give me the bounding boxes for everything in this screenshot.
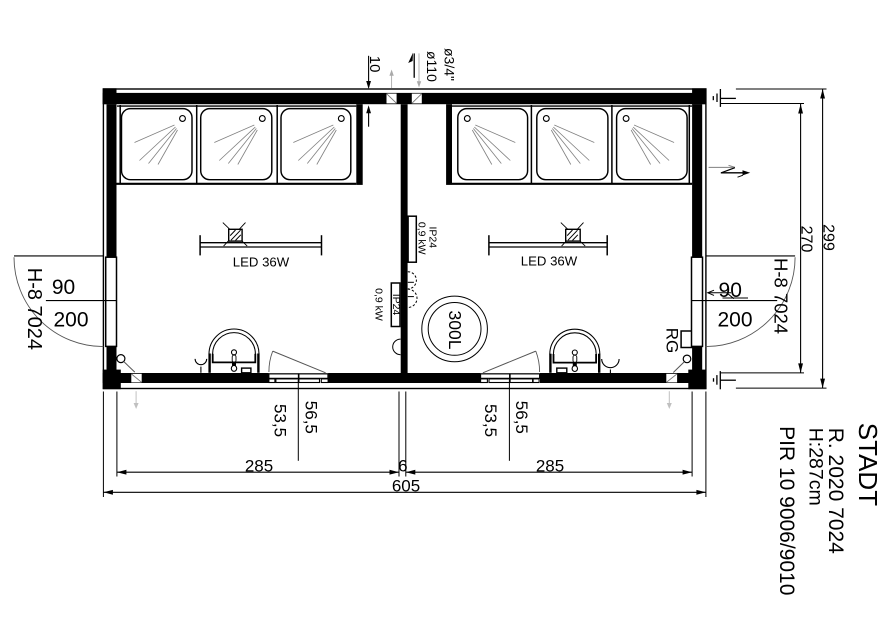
svg-text:285: 285 [536,456,564,475]
svg-text:IP24: IP24 [390,294,402,316]
svg-text:53,5: 53,5 [270,404,289,437]
svg-text:ø110: ø110 [424,51,440,82]
svg-text:299: 299 [820,224,837,251]
svg-text:90: 90 [719,279,742,302]
svg-text:IP24: IP24 [427,226,439,248]
svg-text:0,9 kW: 0,9 kW [372,288,384,321]
svg-text:53,5: 53,5 [481,404,500,437]
svg-text:0,9 kW: 0,9 kW [415,222,427,255]
svg-text:H-8 7024: H-8 7024 [771,258,792,334]
svg-text:PIR 10 9006/9010: PIR 10 9006/9010 [775,426,798,595]
svg-text:200: 200 [717,309,752,332]
svg-text:LED 36W: LED 36W [233,255,290,270]
svg-text:LED 36W: LED 36W [521,254,578,269]
svg-text:200: 200 [53,309,88,332]
svg-text:56,5: 56,5 [512,401,531,434]
svg-text:605: 605 [392,477,420,496]
svg-text:10: 10 [366,56,383,73]
svg-text:H:287cm: H:287cm [805,428,827,506]
svg-text:6: 6 [398,456,407,475]
svg-text:270: 270 [798,226,815,253]
svg-text:285: 285 [245,456,273,475]
svg-text:90: 90 [52,276,75,299]
svg-text:RG: RG [662,328,681,354]
svg-text:ø3/4": ø3/4" [441,48,457,81]
svg-text:H-8 7024: H-8 7024 [23,268,45,350]
svg-text:56,5: 56,5 [302,401,321,434]
svg-text:STADT: STADT [853,423,883,506]
svg-text:300L: 300L [445,311,465,350]
